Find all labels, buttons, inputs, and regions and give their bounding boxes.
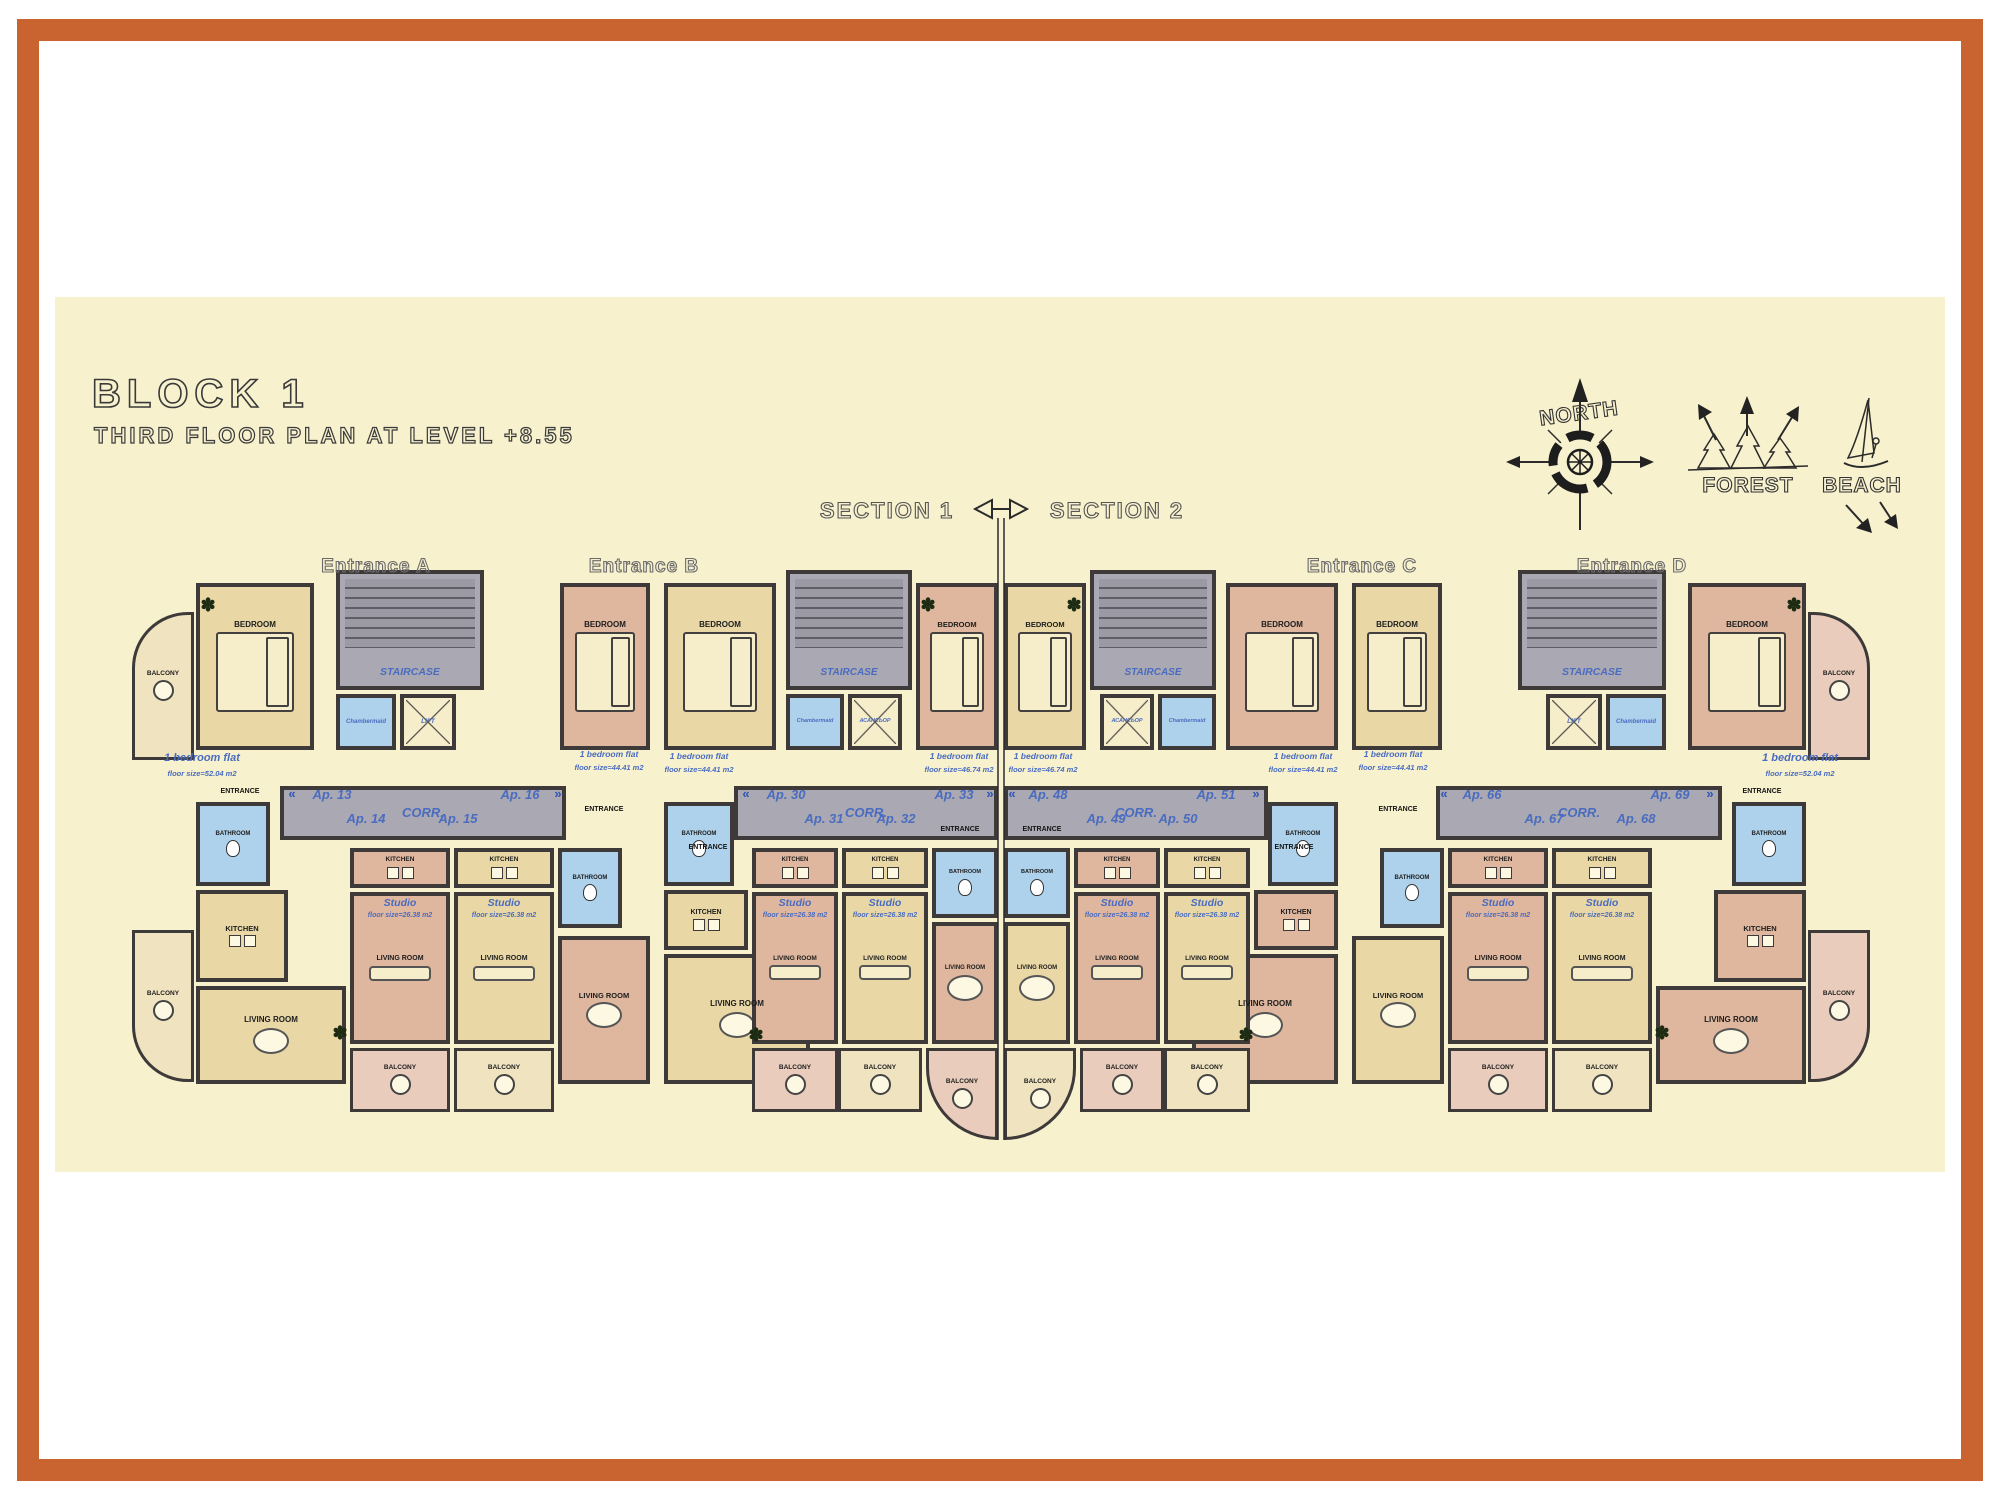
- living-room: LIVING ROOM: [1004, 922, 1070, 1044]
- door-chevron-icon: »: [1248, 787, 1264, 801]
- door-chevron-icon: »: [550, 787, 566, 801]
- round-table-icon: [1488, 1074, 1509, 1095]
- kitchen: KITCHEN: [1448, 848, 1548, 888]
- kitchen: KITCHEN: [1254, 890, 1338, 950]
- round-table-icon: [153, 680, 174, 701]
- door-chevron-icon: »: [982, 787, 998, 801]
- balcony-label: BALCONY: [1024, 1079, 1056, 1086]
- chambermaid-room: Chambermaid: [1606, 694, 1666, 750]
- toilet-icon: [958, 879, 972, 896]
- balcony-label: BALCONY: [1106, 1065, 1138, 1072]
- plant-icon: ✽: [1064, 596, 1084, 616]
- stove-icon: [782, 867, 809, 879]
- studio-living-room-label: LIVING ROOM: [773, 956, 817, 963]
- bathroom: BATHROOM: [196, 802, 270, 886]
- apartment-label: Ap. 69: [1638, 788, 1702, 802]
- lift-label: LIFT: [421, 719, 435, 726]
- stairs-steps-icon: [795, 579, 903, 648]
- round-table-icon: [1030, 1088, 1051, 1109]
- studio-living-room-label: LIVING ROOM: [1474, 955, 1521, 962]
- door-chevron-icon: «: [1436, 787, 1452, 801]
- chambermaid-room-label: Chambermaid: [797, 719, 834, 725]
- apartment-label: Ap. 67: [1512, 812, 1576, 826]
- apartment-label: Ap. 16: [488, 788, 552, 802]
- studio-label: Studio: [844, 898, 926, 910]
- kitchen-label: KITCHEN: [782, 857, 809, 863]
- living-room-label: LIVING ROOM: [1373, 992, 1423, 1000]
- flat-size-label: floor size=52.04 m2: [1734, 770, 1866, 778]
- entrance-label: ENTRANCE: [672, 844, 744, 852]
- living-room: LIVING ROOM: [1656, 986, 1806, 1084]
- plant-icon: ✽: [1236, 1026, 1256, 1046]
- bed-icon: [1018, 632, 1072, 712]
- sofa-icon: [859, 965, 911, 980]
- balcony: BALCONY: [1164, 1048, 1250, 1112]
- flat-size-label: floor size=44.41 m2: [664, 766, 734, 774]
- kitchen-label: KITCHEN: [690, 909, 721, 916]
- apartment-label: Ap. 32: [864, 812, 928, 826]
- entrance-label: ENTRANCE: [1006, 826, 1078, 834]
- living-room-label: LIVING ROOM: [1704, 1016, 1758, 1024]
- bedroom-label: BEDROOM: [1726, 621, 1768, 629]
- balcony-label: BALCONY: [1823, 991, 1855, 998]
- balcony-label: BALCONY: [946, 1079, 978, 1086]
- kitchen-label: KITCHEN: [872, 857, 899, 863]
- bathroom: BATHROOM: [558, 848, 622, 928]
- kitchen: KITCHEN: [350, 848, 450, 888]
- sofa-icon: [1091, 965, 1143, 980]
- bathroom: BATHROOM: [1732, 802, 1806, 886]
- bed-icon: [1367, 632, 1427, 712]
- chambermaid-room: Chambermaid: [786, 694, 844, 750]
- flat-type-label: 1 bedroom flat: [1268, 752, 1338, 761]
- bedroom: BEDROOM: [664, 583, 776, 750]
- studio-size-label: floor size=26.38 m2: [352, 912, 448, 920]
- balcony: BALCONY: [132, 612, 194, 760]
- apartment-label: Ap. 50: [1146, 812, 1210, 826]
- studio-label: Studio: [1554, 898, 1650, 910]
- apartment-label: Ap. 14: [334, 812, 398, 826]
- studio-living-room-label: LIVING ROOM: [1185, 956, 1229, 963]
- bedroom-label: BEDROOM: [584, 621, 626, 629]
- bathroom-label: BATHROOM: [682, 831, 717, 837]
- kitchen: KITCHEN: [1714, 890, 1806, 982]
- kitchen: KITCHEN: [1164, 848, 1250, 888]
- stove-icon: [387, 867, 414, 879]
- flat-type-label: 1 bedroom flat: [920, 752, 998, 761]
- kitchen: KITCHEN: [196, 890, 288, 982]
- balcony-label: BALCONY: [1823, 671, 1855, 678]
- bedroom-label: BEDROOM: [699, 621, 741, 629]
- studio-size-label: floor size=26.38 m2: [456, 912, 552, 920]
- flat-size-label: floor size=44.41 m2: [1350, 764, 1436, 772]
- apartment-label: Ap. 68: [1604, 812, 1668, 826]
- balcony-label: BALCONY: [1482, 1065, 1514, 1072]
- table-oval-icon: [586, 1002, 622, 1028]
- round-table-icon: [1197, 1074, 1218, 1095]
- plant-icon: ✽: [746, 1026, 766, 1046]
- balcony: BALCONY: [1448, 1048, 1548, 1112]
- table-oval-icon: [947, 975, 983, 1001]
- balcony-label: BALCONY: [147, 991, 179, 998]
- kitchen-label: KITCHEN: [1743, 925, 1776, 933]
- chambermaid-room: Chambermaid: [336, 694, 396, 750]
- round-table-icon: [1592, 1074, 1613, 1095]
- plant-icon: ✽: [1652, 1024, 1672, 1044]
- flat-type-label: 1 bedroom flat: [566, 750, 652, 759]
- bedroom: BEDROOM: [1352, 583, 1442, 750]
- staircase: STAIRCASE: [1518, 570, 1666, 690]
- balcony: BALCONY: [926, 1048, 998, 1140]
- balcony-label: BALCONY: [147, 671, 179, 678]
- living-room-label: LIVING ROOM: [579, 992, 629, 1000]
- sofa-icon: [369, 966, 430, 981]
- round-table-icon: [153, 1000, 174, 1021]
- balcony-label: BALCONY: [1191, 1065, 1223, 1072]
- apartment-label: Ap. 49: [1074, 812, 1138, 826]
- stove-icon: [1104, 867, 1131, 879]
- bedroom: BEDROOM: [1226, 583, 1338, 750]
- studio-size-label: floor size=26.38 m2: [1450, 912, 1546, 920]
- apartment-label: Ap. 31: [792, 812, 856, 826]
- round-table-icon: [390, 1074, 411, 1095]
- table-oval-icon: [1713, 1028, 1749, 1054]
- door-chevron-icon: »: [1702, 787, 1718, 801]
- kitchen-label: KITCHEN: [1194, 857, 1221, 863]
- lift-label: LIFT: [1567, 719, 1581, 726]
- sofa-icon: [769, 965, 821, 980]
- sofa-icon: [1467, 966, 1528, 981]
- kitchen-label: KITCHEN: [1588, 857, 1617, 864]
- lift: LIFT: [400, 694, 456, 750]
- entrance-label: ENTRANCE: [924, 826, 996, 834]
- entrance-label: ENTRANCE: [1258, 844, 1330, 852]
- round-table-icon: [1829, 1000, 1850, 1021]
- kitchen: KITCHEN: [842, 848, 928, 888]
- kitchen-label: KITCHEN: [1280, 909, 1311, 916]
- bedroom-label: BEDROOM: [1376, 621, 1418, 629]
- round-table-icon: [1112, 1074, 1133, 1095]
- kitchen-label: KITCHEN: [1104, 857, 1131, 863]
- bedroom-label: BEDROOM: [1025, 621, 1064, 629]
- kitchen: KITCHEN: [752, 848, 838, 888]
- stairs-steps-icon: [1527, 579, 1657, 648]
- page: { "header": { "title": "BLOCK 1", "subti…: [0, 0, 2000, 1500]
- kitchen: KITCHEN: [1552, 848, 1652, 888]
- stove-icon: [1747, 935, 1774, 947]
- living-room-label: LIVING ROOM: [1238, 1000, 1292, 1008]
- balcony: BALCONY: [350, 1048, 450, 1112]
- apartment-label: Ap. 33: [922, 788, 986, 802]
- table-oval-icon: [253, 1028, 289, 1054]
- balcony: BALCONY: [132, 930, 194, 1082]
- balcony-label: BALCONY: [779, 1065, 811, 1072]
- studio-living-room-label: LIVING ROOM: [376, 955, 423, 962]
- door-chevron-icon: «: [738, 787, 754, 801]
- stove-icon: [1485, 867, 1512, 879]
- lift-label: АСАНСЬОР: [859, 719, 890, 725]
- plant-icon: ✽: [918, 596, 938, 616]
- bedroom-label: BEDROOM: [1261, 621, 1303, 629]
- balcony: BALCONY: [1808, 930, 1870, 1082]
- studio-label: Studio: [456, 898, 552, 910]
- flat-type-label: 1 bedroom flat: [1004, 752, 1082, 761]
- kitchen-label: KITCHEN: [225, 925, 258, 933]
- sofa-icon: [1571, 966, 1632, 981]
- stairs-steps-icon: [345, 579, 475, 648]
- stove-icon: [229, 935, 256, 947]
- kitchen: KITCHEN: [454, 848, 554, 888]
- flat-size-label: floor size=44.41 m2: [1268, 766, 1338, 774]
- studio-living-room-label: LIVING ROOM: [480, 955, 527, 962]
- lift: АСАНСЬОР: [1100, 694, 1154, 750]
- bedroom: BEDROOM: [560, 583, 650, 750]
- bathroom-label: BATHROOM: [949, 870, 981, 876]
- toilet-icon: [1762, 840, 1776, 857]
- flat-type-label: 1 bedroom flat: [136, 752, 268, 764]
- stove-icon: [491, 867, 518, 879]
- plant-icon: ✽: [198, 596, 218, 616]
- bed-icon: [575, 632, 635, 712]
- lift: LIFT: [1546, 694, 1602, 750]
- studio-living-room-label: LIVING ROOM: [863, 956, 907, 963]
- studio-size-label: floor size=26.38 m2: [754, 912, 836, 920]
- staircase: STAIRCASE: [336, 570, 484, 690]
- living-room-label: LIVING ROOM: [945, 965, 985, 971]
- studio-size-label: floor size=26.38 m2: [1076, 912, 1158, 920]
- round-table-icon: [1829, 680, 1850, 701]
- entrance-label: ENTRANCE: [566, 806, 642, 814]
- round-table-icon: [952, 1088, 973, 1109]
- bathroom-label: BATHROOM: [1752, 831, 1787, 837]
- chambermaid-room-label: Chambermaid: [1616, 719, 1656, 725]
- staircase: STAIRCASE: [786, 570, 912, 690]
- apartment-label: Ap. 30: [754, 788, 818, 802]
- round-table-icon: [494, 1074, 515, 1095]
- living-room: LIVING ROOM: [1352, 936, 1444, 1084]
- stove-icon: [1194, 867, 1221, 879]
- entrance-label: ENTRANCE: [1360, 806, 1436, 814]
- balcony-label: BALCONY: [488, 1065, 520, 1072]
- studio-label: Studio: [352, 898, 448, 910]
- flat-type-label: 1 bedroom flat: [1734, 752, 1866, 764]
- round-table-icon: [870, 1074, 891, 1095]
- stove-icon: [872, 867, 899, 879]
- flat-type-label: 1 bedroom flat: [664, 752, 734, 761]
- apartment-label: Ap. 13: [300, 788, 364, 802]
- studio-label: Studio: [1450, 898, 1546, 910]
- chambermaid-room-label: Chambermaid: [1169, 719, 1206, 725]
- bathroom-label: BATHROOM: [1395, 875, 1430, 881]
- round-table-icon: [785, 1074, 806, 1095]
- kitchen-label: KITCHEN: [1484, 857, 1513, 864]
- stove-icon: [1589, 867, 1616, 879]
- bed-icon: [930, 632, 984, 712]
- kitchen: KITCHEN: [664, 890, 748, 950]
- flat-size-label: floor size=46.74 m2: [920, 766, 998, 774]
- bathroom-label: BATHROOM: [216, 831, 251, 837]
- balcony: BALCONY: [1080, 1048, 1164, 1112]
- flat-type-label: 1 bedroom flat: [1350, 750, 1436, 759]
- floor-plan: BALCONYBEDROOMSTAIRCASEBEDROOMChambermai…: [0, 0, 2000, 1500]
- sofa-icon: [1181, 965, 1233, 980]
- staircase-label: STAIRCASE: [380, 667, 440, 678]
- balcony: BALCONY: [1552, 1048, 1652, 1112]
- studio-living-room-label: LIVING ROOM: [1095, 956, 1139, 963]
- staircase-label: STAIRCASE: [820, 668, 877, 679]
- chambermaid-room-label: Chambermaid: [346, 719, 386, 725]
- living-room: LIVING ROOM: [932, 922, 998, 1044]
- bathroom: BATHROOM: [1380, 848, 1444, 928]
- bathroom-label: BATHROOM: [1021, 870, 1053, 876]
- apartment-label: Ap. 15: [426, 812, 490, 826]
- door-chevron-icon: «: [1004, 787, 1020, 801]
- balcony: BALCONY: [1808, 612, 1870, 760]
- toilet-icon: [583, 884, 597, 901]
- bed-icon: [216, 632, 295, 712]
- living-room: LIVING ROOM: [196, 986, 346, 1084]
- stove-icon: [693, 919, 720, 931]
- apartment-label: Ap. 48: [1016, 788, 1080, 802]
- plant-icon: ✽: [330, 1024, 350, 1044]
- bedroom-label: BEDROOM: [234, 621, 276, 629]
- apartment-label: Ap. 66: [1450, 788, 1514, 802]
- bathroom: BATHROOM: [1004, 848, 1070, 918]
- entrance-label: ENTRANCE: [1726, 788, 1798, 796]
- balcony-label: BALCONY: [1586, 1065, 1618, 1072]
- door-chevron-icon: «: [284, 787, 300, 801]
- living-room-label: LIVING ROOM: [710, 1000, 764, 1008]
- kitchen: KITCHEN: [1074, 848, 1160, 888]
- living-room-label: LIVING ROOM: [1017, 965, 1057, 971]
- living-room: LIVING ROOM: [558, 936, 650, 1084]
- chambermaid-room: Chambermaid: [1158, 694, 1216, 750]
- balcony: BALCONY: [454, 1048, 554, 1112]
- flat-size-label: floor size=46.74 m2: [1004, 766, 1082, 774]
- entrance-label: ENTRANCE: [204, 788, 276, 796]
- plant-icon: ✽: [1784, 596, 1804, 616]
- studio-label: Studio: [1166, 898, 1248, 910]
- lift: АСАНСЬОР: [848, 694, 902, 750]
- kitchen-label: KITCHEN: [386, 857, 415, 864]
- bathroom-label: BATHROOM: [1286, 831, 1321, 837]
- balcony: BALCONY: [752, 1048, 838, 1112]
- toilet-icon: [1030, 879, 1044, 896]
- staircase: STAIRCASE: [1090, 570, 1216, 690]
- kitchen-label: KITCHEN: [490, 857, 519, 864]
- bed-icon: [1708, 632, 1787, 712]
- stove-icon: [1283, 919, 1310, 931]
- apartment-label: Ap. 51: [1184, 788, 1248, 802]
- toilet-icon: [226, 840, 240, 857]
- staircase-label: STAIRCASE: [1562, 667, 1622, 678]
- bathroom: BATHROOM: [932, 848, 998, 918]
- balcony: BALCONY: [838, 1048, 922, 1112]
- bedroom-label: BEDROOM: [937, 621, 976, 629]
- studio-living-room-label: LIVING ROOM: [1578, 955, 1625, 962]
- studio-label: Studio: [754, 898, 836, 910]
- toilet-icon: [1405, 884, 1419, 901]
- studio-label: Studio: [1076, 898, 1158, 910]
- balcony: BALCONY: [1004, 1048, 1076, 1140]
- table-oval-icon: [1380, 1002, 1416, 1028]
- sofa-icon: [473, 966, 534, 981]
- studio-size-label: floor size=26.38 m2: [844, 912, 926, 920]
- balcony-label: BALCONY: [384, 1065, 416, 1072]
- bed-icon: [1245, 632, 1320, 712]
- studio-size-label: floor size=26.38 m2: [1554, 912, 1650, 920]
- stairs-steps-icon: [1099, 579, 1207, 648]
- studio-size-label: floor size=26.38 m2: [1166, 912, 1248, 920]
- staircase-label: STAIRCASE: [1124, 668, 1181, 679]
- lift-label: АСАНСЬОР: [1111, 719, 1142, 725]
- flat-size-label: floor size=44.41 m2: [566, 764, 652, 772]
- balcony-label: BALCONY: [864, 1065, 896, 1072]
- table-oval-icon: [1019, 975, 1055, 1001]
- flat-size-label: floor size=52.04 m2: [136, 770, 268, 778]
- living-room-label: LIVING ROOM: [244, 1016, 298, 1024]
- bathroom-label: BATHROOM: [573, 875, 608, 881]
- bed-icon: [683, 632, 758, 712]
